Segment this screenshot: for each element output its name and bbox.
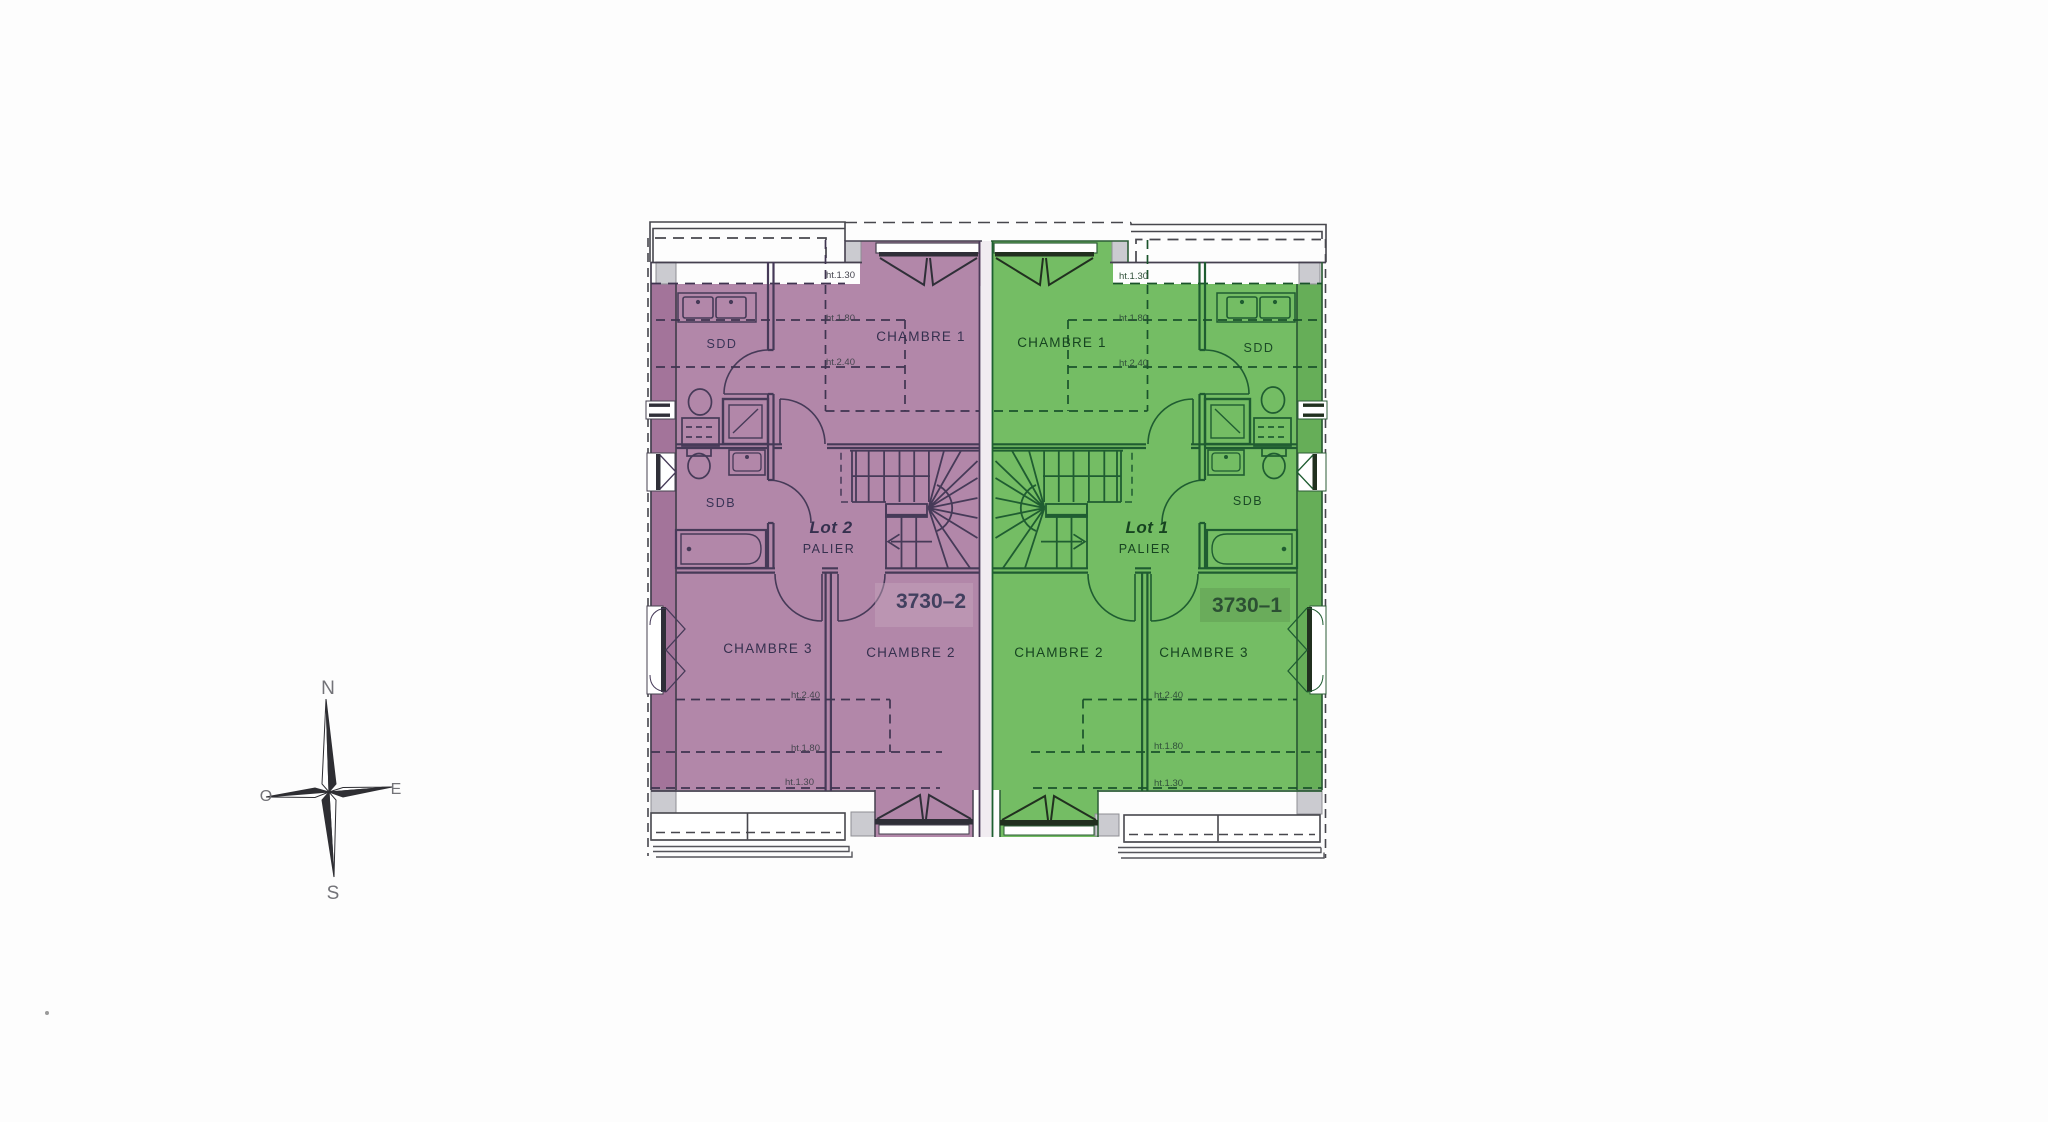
svg-text:3730–1: 3730–1	[1212, 594, 1282, 617]
svg-text:CHAMBRE 1: CHAMBRE 1	[1017, 335, 1107, 350]
svg-text:PALIER: PALIER	[803, 542, 856, 556]
svg-text:SDB: SDB	[1233, 494, 1263, 508]
svg-text:SDB: SDB	[706, 496, 736, 510]
svg-text:CHAMBRE 1: CHAMBRE 1	[876, 329, 966, 344]
svg-text:PALIER: PALIER	[1119, 542, 1172, 556]
svg-text:SDD: SDD	[707, 337, 738, 351]
svg-text:CHAMBRE 2: CHAMBRE 2	[866, 645, 956, 660]
svg-text:ht.1.80: ht.1.80	[1154, 741, 1183, 752]
svg-text:CHAMBRE 3: CHAMBRE 3	[723, 641, 813, 656]
svg-text:3730–2: 3730–2	[896, 590, 966, 613]
svg-text:ht.2.40: ht.2.40	[826, 357, 855, 368]
svg-text:N: N	[321, 678, 335, 699]
svg-text:O: O	[260, 788, 272, 805]
svg-text:Lot 1: Lot 1	[1125, 518, 1168, 537]
svg-text:ht.1.30: ht.1.30	[1154, 778, 1183, 789]
svg-text:CHAMBRE 2: CHAMBRE 2	[1014, 645, 1104, 660]
svg-text:ht.1.80: ht.1.80	[791, 743, 820, 754]
svg-text:ht.2.40: ht.2.40	[1119, 358, 1148, 369]
svg-text:SDD: SDD	[1244, 341, 1275, 355]
svg-text:ht.1.30: ht.1.30	[826, 270, 855, 281]
svg-text:S: S	[327, 883, 340, 904]
svg-text:E: E	[391, 781, 402, 798]
svg-text:ht.2.40: ht.2.40	[1154, 690, 1183, 701]
svg-text:ht.1.80: ht.1.80	[826, 313, 855, 324]
svg-text:ht.2.40: ht.2.40	[791, 690, 820, 701]
svg-text:CHAMBRE 3: CHAMBRE 3	[1159, 645, 1249, 660]
svg-text:ht.1.30: ht.1.30	[785, 777, 814, 788]
svg-text:ht.1.30: ht.1.30	[1119, 271, 1148, 282]
svg-text:ht.1.80: ht.1.80	[1119, 313, 1148, 324]
svg-text:Lot 2: Lot 2	[809, 518, 852, 537]
